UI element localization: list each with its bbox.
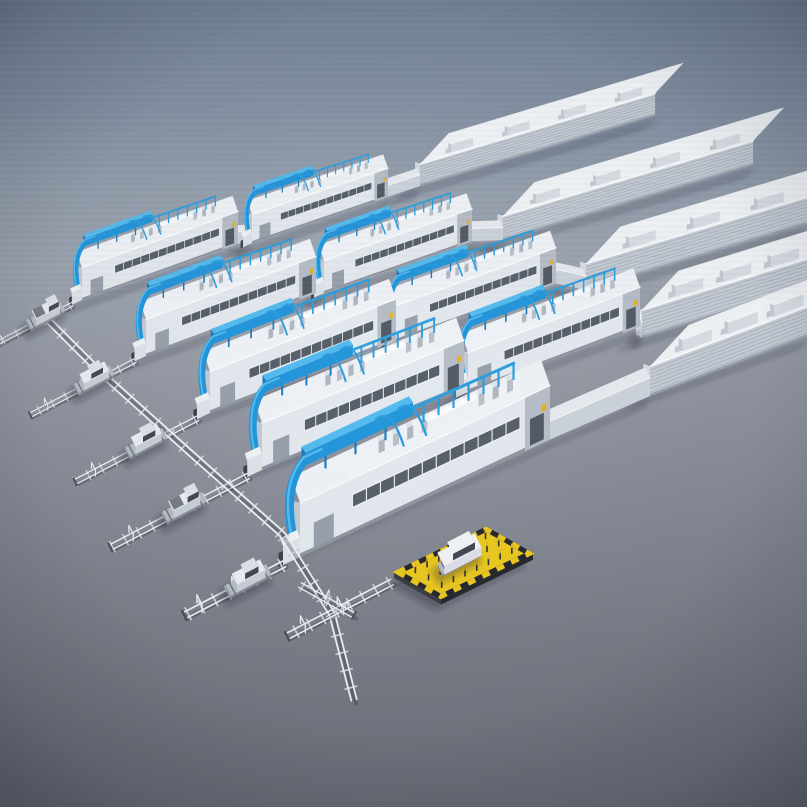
render-scene bbox=[0, 0, 807, 807]
factory-render-canvas bbox=[0, 0, 807, 807]
vignette-overlay bbox=[0, 0, 807, 807]
